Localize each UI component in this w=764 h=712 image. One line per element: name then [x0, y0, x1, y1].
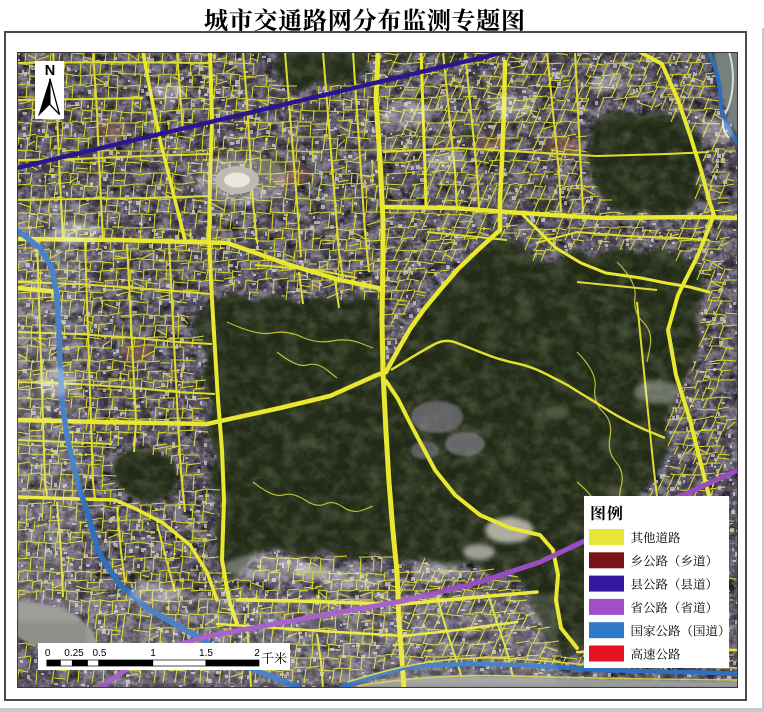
svg-text:0.25: 0.25 — [64, 648, 84, 659]
svg-text:N: N — [45, 63, 55, 79]
svg-text:0: 0 — [45, 648, 51, 659]
svg-text:0.5: 0.5 — [93, 648, 107, 659]
svg-text:2: 2 — [254, 648, 260, 659]
svg-text:1.5: 1.5 — [199, 648, 213, 659]
svg-text:1: 1 — [150, 648, 156, 659]
